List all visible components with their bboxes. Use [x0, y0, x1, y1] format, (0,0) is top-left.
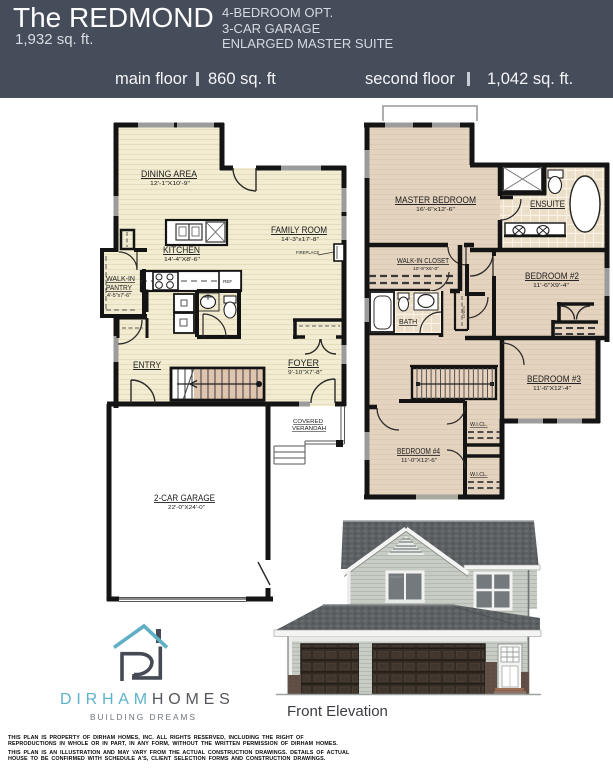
svg-text:COVERED: COVERED — [293, 419, 323, 425]
svg-text:11'-0"X12'-6": 11'-0"X12'-6" — [401, 458, 437, 464]
svg-text:DINING AREA: DINING AREA — [141, 169, 198, 180]
svg-text:10'-9"X6'-0": 10'-9"X6'-0" — [413, 266, 439, 271]
svg-text:FAMILY ROOM: FAMILY ROOM — [271, 225, 327, 236]
svg-text:12'-1"X10'-9": 12'-1"X10'-9" — [150, 181, 190, 187]
svg-text:BATH: BATH — [399, 319, 417, 326]
svg-text:FOYER: FOYER — [288, 358, 319, 369]
svg-text:ENSUITE: ENSUITE — [530, 199, 565, 210]
svg-text:16'-6"x12'-6": 16'-6"x12'-6" — [416, 207, 455, 213]
svg-text:9'-10"X7'-8": 9'-10"X7'-8" — [288, 370, 322, 376]
svg-text:VERANDAH: VERANDAH — [292, 426, 326, 432]
svg-text:PANTRY: PANTRY — [106, 285, 132, 292]
svg-text:BEDROOM #4: BEDROOM #4 — [397, 447, 440, 456]
svg-text:2-CAR GARAGE: 2-CAR GARAGE — [154, 493, 215, 503]
svg-text:14'-4"X8'-6": 14'-4"X8'-6" — [164, 257, 200, 263]
svg-text:BEDROOM #3: BEDROOM #3 — [527, 374, 581, 385]
svg-text:11'-6"X12'-4": 11'-6"X12'-4" — [533, 386, 571, 392]
svg-text:14'-3"x17'-8": 14'-3"x17'-8" — [281, 237, 319, 243]
svg-text:REF: REF — [223, 279, 232, 284]
svg-text:4'-5"x7'-6": 4'-5"x7'-6" — [107, 293, 131, 299]
svg-text:WALK-IN: WALK-IN — [106, 276, 135, 283]
svg-text:W.I.CL.: W.I.CL. — [470, 472, 488, 478]
svg-text:ENTRY: ENTRY — [133, 360, 162, 371]
svg-text:FIREPLACE: FIREPLACE — [296, 250, 319, 255]
svg-text:KITCHEN: KITCHEN — [163, 245, 200, 256]
svg-text:WALK-IN CLOSET: WALK-IN CLOSET — [397, 256, 449, 265]
svg-text:MASTER BEDROOM: MASTER BEDROOM — [395, 195, 476, 206]
svg-text:LINEN: LINEN — [461, 306, 466, 318]
svg-text:W.I.CL.: W.I.CL. — [470, 422, 488, 428]
svg-text:11'-6"X9'-4": 11'-6"X9'-4" — [533, 283, 569, 289]
svg-text:BEDROOM #2: BEDROOM #2 — [525, 271, 579, 282]
svg-text:22'-0"X24'-0": 22'-0"X24'-0" — [168, 505, 205, 511]
